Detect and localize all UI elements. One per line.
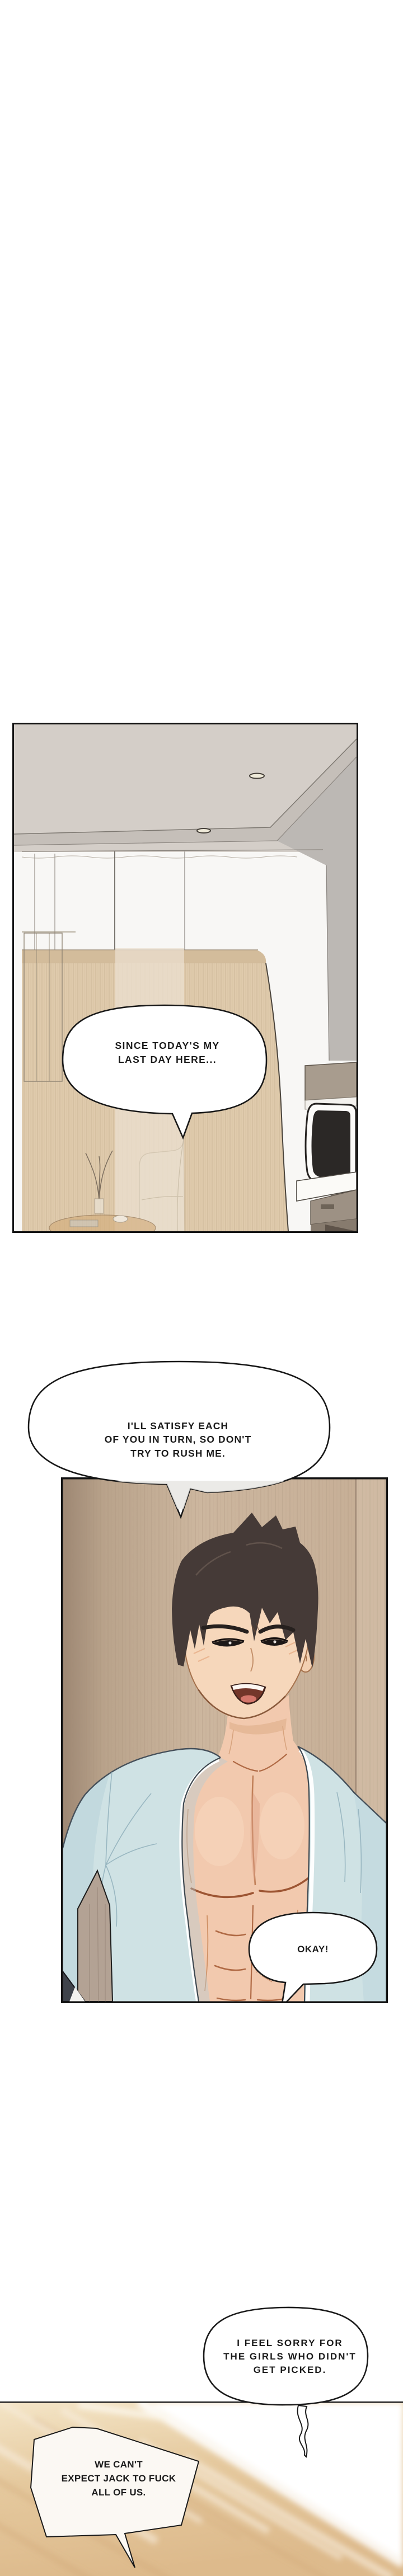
- svg-text:I FEEL SORRY FOR: I FEEL SORRY FOR: [237, 2338, 343, 2348]
- svg-text:I'LL SATISFY EACH: I'LL SATISFY EACH: [128, 1420, 228, 1431]
- svg-text:SINCE TODAY'S MY: SINCE TODAY'S MY: [115, 1040, 219, 1051]
- svg-text:THE GIRLS WHO DIDN'T: THE GIRLS WHO DIDN'T: [223, 2351, 357, 2362]
- svg-text:LAST DAY HERE...: LAST DAY HERE...: [118, 1054, 217, 1065]
- svg-text:WE CAN'T: WE CAN'T: [95, 2459, 143, 2470]
- svg-text:OF YOU IN TURN, SO DON'T: OF YOU IN TURN, SO DON'T: [105, 1434, 252, 1445]
- svg-text:ALL OF US.: ALL OF US.: [91, 2487, 146, 2498]
- svg-text:OKAY!: OKAY!: [297, 1944, 329, 1955]
- svg-text:TRY TO RUSH ME.: TRY TO RUSH ME.: [130, 1448, 226, 1459]
- svg-text:EXPECT JACK TO FUCK: EXPECT JACK TO FUCK: [62, 2473, 176, 2484]
- svg-text:GET PICKED.: GET PICKED.: [254, 2365, 327, 2375]
